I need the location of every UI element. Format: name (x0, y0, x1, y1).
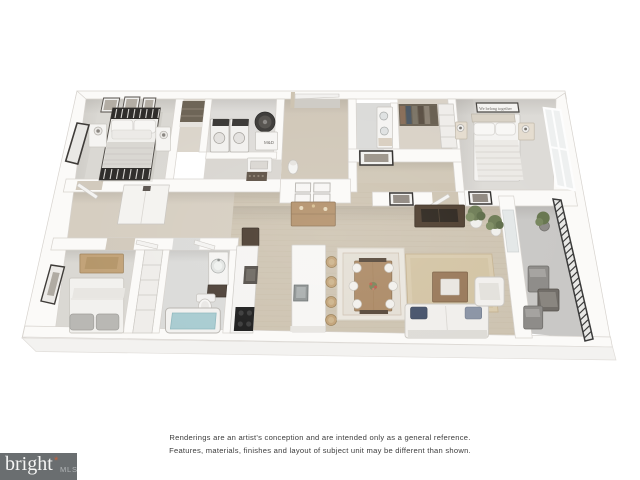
svg-text:We belong together: We belong together (479, 106, 512, 111)
